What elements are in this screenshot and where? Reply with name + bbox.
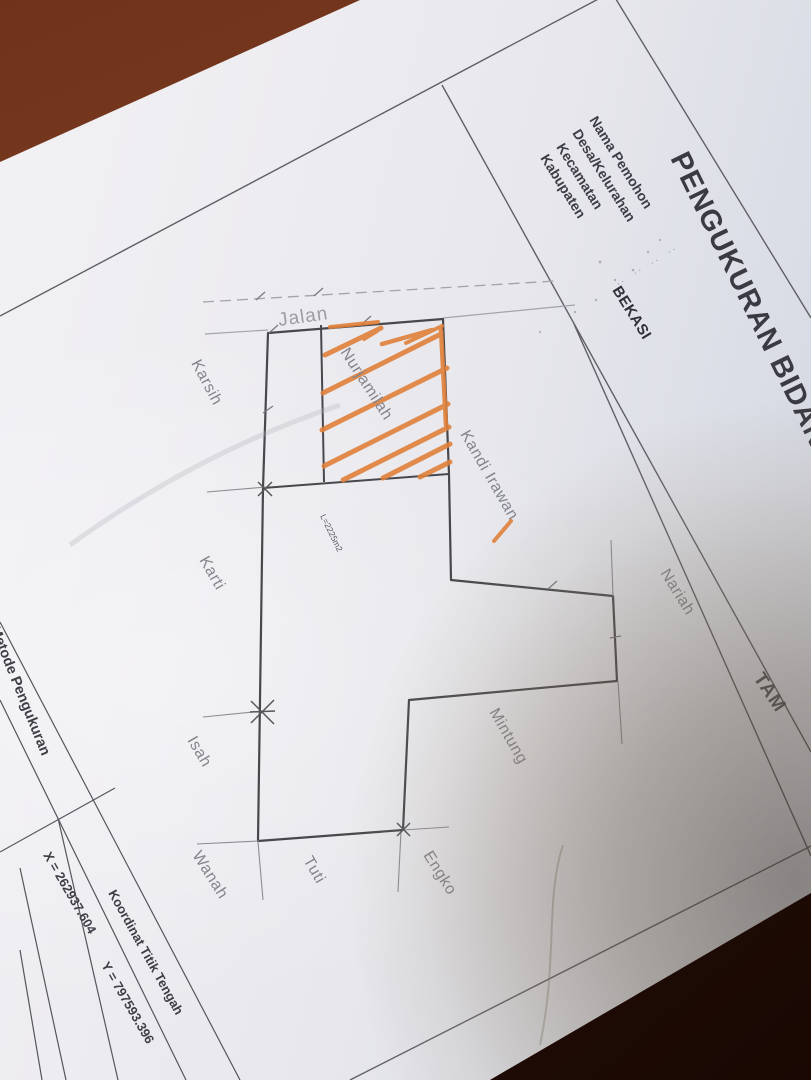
labels: PENGUKURAN BIDANG Nama Pemohon Desa/Kelu… <box>0 113 811 1046</box>
road-edge-line <box>205 330 268 334</box>
map-label-engko: Engko <box>420 848 460 898</box>
document-title: PENGUKURAN BIDANG <box>664 147 811 473</box>
speck <box>595 299 597 301</box>
speck <box>599 261 602 264</box>
road-centerline <box>203 281 556 302</box>
section-label-tam: TAM <box>749 669 790 716</box>
document-artwork: PENGUKURAN BIDANG Nama Pemohon Desa/Kelu… <box>0 0 811 1080</box>
form-value-kabupaten: BEKASI <box>609 283 655 343</box>
map-label-nariah: Nariah <box>657 566 698 618</box>
speck <box>574 311 576 313</box>
speck <box>647 251 649 253</box>
survey-marks <box>250 288 621 836</box>
map-label-karsih: Karsih <box>187 357 225 408</box>
parcel-outline <box>258 319 617 841</box>
speck <box>614 279 616 281</box>
footer-method-label: Metode Pengukuran <box>0 624 53 758</box>
table-rule <box>0 788 115 852</box>
witness-line <box>207 487 266 492</box>
parcel-inner-line <box>321 325 324 482</box>
border-line <box>614 0 811 318</box>
crease-line <box>70 405 340 545</box>
map-label-mintung: Mintung <box>486 706 531 767</box>
witness-line <box>611 540 613 596</box>
witness-line <box>618 681 622 744</box>
witness-line <box>258 842 263 900</box>
speck <box>659 239 661 241</box>
form-colon: : <box>648 256 662 266</box>
hatch-stroke <box>330 322 378 327</box>
map-label-area: L=2225m2 <box>318 512 345 553</box>
hatch-stroke <box>494 521 511 541</box>
map-label-tuti: Tuti <box>300 854 329 887</box>
tick-mark <box>314 288 323 296</box>
road-edge-line <box>443 305 575 318</box>
footer-x-value: X = 262937.604 <box>40 849 99 937</box>
hatch-stroke <box>383 444 450 478</box>
table-rule <box>58 818 118 1080</box>
speck <box>539 331 541 333</box>
border-line <box>574 324 811 856</box>
witness-line <box>398 831 401 892</box>
table-rule <box>20 950 42 1080</box>
witness-line <box>197 841 259 844</box>
photo-of-survey-document: PENGUKURAN BIDANG Nama Pemohon Desa/Kelu… <box>0 0 811 1080</box>
table-rule <box>20 868 66 1080</box>
tick-mark <box>548 581 557 589</box>
star-mark <box>250 711 275 712</box>
form-colon: : <box>631 266 645 276</box>
parcel-boundary <box>258 319 617 841</box>
map-label-kandi-irawan: Kandi Irawan <box>457 428 522 524</box>
road-lines <box>203 281 575 334</box>
witness-line <box>403 827 449 830</box>
form-colon: : <box>665 245 679 255</box>
map-label-wanah: Wanah <box>189 848 232 902</box>
crease-line <box>540 845 563 1045</box>
map-label-karti: Karti <box>196 554 229 594</box>
hatch-stroke <box>441 330 446 425</box>
table-rule <box>0 700 186 1080</box>
border-line <box>0 0 604 316</box>
map-label-isah: Isah <box>184 734 215 771</box>
